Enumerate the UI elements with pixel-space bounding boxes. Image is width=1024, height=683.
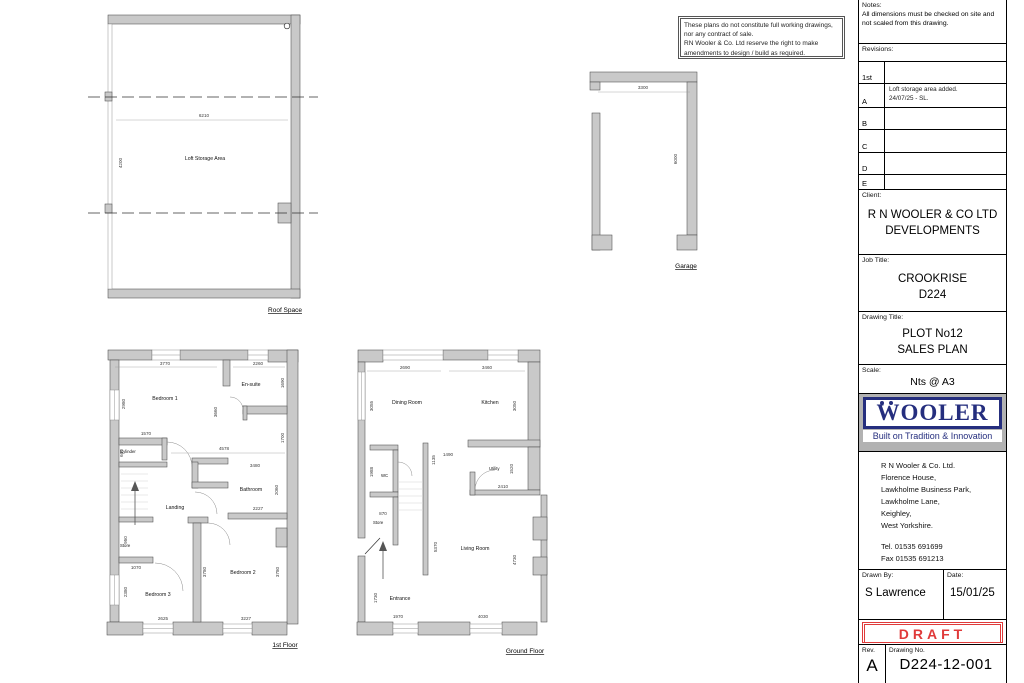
dim-1690: 1690 xyxy=(280,377,285,388)
dim-2410: 2410 xyxy=(498,484,509,489)
address-section: R N Wooler & Co. Ltd. Florence House, La… xyxy=(859,452,1006,570)
client-name-line2: DEVELOPMENTS xyxy=(859,224,1006,240)
drawnby-cell: Drawn By: S Lawrence xyxy=(859,570,944,619)
revision-id: A xyxy=(859,84,885,107)
job-title-line2: D224 xyxy=(859,288,1006,304)
room-living: Living Room xyxy=(461,546,490,552)
dim-4578: 4578 xyxy=(219,446,230,451)
dim-4730: 4730 xyxy=(512,554,517,565)
dim-1730: 1730 xyxy=(373,592,378,603)
dim-2625: 2625 xyxy=(158,616,169,621)
revision-row: C xyxy=(859,130,1006,153)
drawing-number-cell: Drawing No. D224-12-001 xyxy=(886,645,1006,683)
dim-6000: 6000 xyxy=(673,153,678,164)
room-wc: WC xyxy=(381,473,388,478)
plan-title-first: 1st Floor xyxy=(272,642,298,649)
roof-space-plan: 6210 4200 Loft Storage Area Roof Space xyxy=(88,8,318,318)
revision-desc xyxy=(885,108,1006,129)
dim-3460: 3460 xyxy=(482,365,493,370)
disclaimer-line: RN Wooler & Co. Ltd reserve the right to… xyxy=(684,39,839,48)
garage-plan: 3300 6000 Garage xyxy=(578,62,713,277)
dim-3660: 3660 xyxy=(213,406,218,417)
title-block: Notes: All dimensions must be checked on… xyxy=(858,0,1007,683)
drawing-title-line2: SALES PLAN xyxy=(859,343,1006,359)
dim-5370: 5370 xyxy=(433,541,438,552)
room-bedroom3: Bedroom 3 xyxy=(145,592,170,598)
revision-id: B xyxy=(859,108,885,129)
stairs-up-arrow-icon xyxy=(131,481,139,491)
room-ensuite: En-suite xyxy=(241,382,260,388)
dim-3055: 3055 xyxy=(369,400,374,411)
scale-value: Nts @ A3 xyxy=(859,375,1006,389)
revision-row: 1st xyxy=(859,62,1006,84)
room-landing: Landing xyxy=(166,505,185,511)
date-value: 15/01/25 xyxy=(944,579,1006,599)
dim-4030: 4030 xyxy=(478,614,489,619)
notes-text: All dimensions must be checked on site a… xyxy=(859,9,1006,28)
client-name-line1: R N WOOLER & CO LTD xyxy=(859,208,1006,224)
room-kitchen: Kitchen xyxy=(481,400,498,406)
revision-id: 1st xyxy=(859,62,885,83)
revision-desc xyxy=(885,153,1006,174)
dim-870: 870 xyxy=(379,511,387,516)
draft-text: DRAFT xyxy=(864,624,1001,643)
scale-label: Scale: xyxy=(859,365,1006,374)
stairs-up-arrow-icon xyxy=(379,541,387,551)
room-dining: Dining Room xyxy=(392,400,422,406)
wooler-logo-text: WOOLER xyxy=(866,400,999,426)
dim-1135: 1135 xyxy=(431,455,436,465)
address-line: Lawkholme Business Park, xyxy=(881,484,1006,496)
entrance-door-leaf xyxy=(365,538,380,554)
dim-3780-left: 3780 xyxy=(202,566,207,577)
dim-3480: 3480 xyxy=(250,463,261,468)
revision-desc xyxy=(885,62,1006,83)
dim-3227: 3227 xyxy=(241,616,252,621)
drawing-number-label: Drawing No. xyxy=(886,645,1006,654)
address-line: Florence House, xyxy=(881,472,1006,484)
rev-cell: Rev. A xyxy=(859,645,886,683)
dim-1970: 1970 xyxy=(393,614,404,619)
revision-desc xyxy=(885,130,1006,152)
dim-3770: 3770 xyxy=(160,361,171,366)
dim-2060: 2060 xyxy=(274,484,279,495)
dim-6210: 6210 xyxy=(199,113,210,118)
logo-section: WOOLER Built on Tradition & Innovation xyxy=(859,394,1006,452)
client-section: Client: R N WOOLER & CO LTD DEVELOPMENTS xyxy=(859,190,1006,255)
dim-3780-right: 3780 xyxy=(275,566,280,577)
dim-4200: 4200 xyxy=(118,157,123,168)
revision-id: D xyxy=(859,153,885,174)
rev-value: A xyxy=(859,656,885,676)
logo-pin-icon xyxy=(889,401,893,405)
dim-1570: 1570 xyxy=(141,431,152,436)
room-loft-storage: Loft Storage Area xyxy=(185,156,225,162)
plan-title-garage: Garage xyxy=(675,263,697,270)
revision-row: A Loft storage area added.24/07/25 - SL. xyxy=(859,84,1006,108)
drawing-sheet: 6210 4200 Loft Storage Area Roof Space 3… xyxy=(0,0,1024,683)
job-title-label: Job Title: xyxy=(859,255,1006,264)
room-bathroom: Bathroom xyxy=(240,487,263,493)
room-entrance: Entrance xyxy=(390,596,411,602)
draft-stamp: DRAFT xyxy=(862,622,1003,643)
disclaimer-line: These plans do not constitute full worki… xyxy=(684,21,839,30)
job-title-section: Job Title: CROOKRISE D224 xyxy=(859,255,1006,312)
revision-id: C xyxy=(859,130,885,152)
revision-row: E xyxy=(859,175,1006,190)
revision-row: D xyxy=(859,153,1006,175)
first-floor-plan: 3770 2260 2980 1690 3660 1570 600 4578 1… xyxy=(103,342,315,654)
revision-desc xyxy=(885,175,1006,189)
rev-number-section: Rev. A Drawing No. D224-12-001 xyxy=(859,645,1006,683)
job-title-line1: CROOKRISE xyxy=(859,272,1006,288)
drawnby-date-section: Drawn By: S Lawrence Date: 15/01/25 xyxy=(859,570,1006,620)
phone-line: Tel. 01535 691699 xyxy=(881,541,1006,553)
ground-floor-plan: 2690 3460 3055 3050 1988 1490 1135 1520 … xyxy=(353,342,553,662)
room-cylinder: Cylinder xyxy=(120,449,136,454)
wooler-logo: WOOLER xyxy=(863,397,1002,429)
dim-3050: 3050 xyxy=(512,400,517,411)
revision-id: E xyxy=(859,175,885,189)
roof-access-icon xyxy=(284,23,290,29)
address-line: Keighley, xyxy=(881,508,1006,520)
revisions-label: Revisions: xyxy=(859,44,1006,53)
disclaimer-line: amendments to design / build as required… xyxy=(684,49,839,58)
room-utility: Utility xyxy=(489,466,500,471)
revision-desc: Loft storage area added.24/07/25 - SL. xyxy=(885,84,1006,107)
dim-2980: 2980 xyxy=(121,398,126,409)
drawing-title-section: Drawing Title: PLOT No12 SALES PLAN xyxy=(859,312,1006,365)
dim-1070: 1070 xyxy=(131,565,142,570)
dim-2380: 2380 xyxy=(123,586,128,597)
dim-1988: 1988 xyxy=(369,466,374,477)
address-line: Lawkholme Lane, xyxy=(881,496,1006,508)
revisions-header: Revisions: xyxy=(859,44,1006,62)
dim-2690: 2690 xyxy=(400,365,411,370)
revisions-table: 1st A Loft storage area added.24/07/25 -… xyxy=(859,62,1006,190)
dim-1700: 1700 xyxy=(280,432,285,443)
drawing-title-label: Drawing Title: xyxy=(859,312,1006,321)
room-store-first: Store xyxy=(120,543,131,548)
rev-label: Rev. xyxy=(859,645,885,654)
date-cell: Date: 15/01/25 xyxy=(944,570,1006,619)
drawing-number-value: D224-12-001 xyxy=(886,656,1006,673)
dim-2260: 2260 xyxy=(253,361,264,366)
room-store-ground: Store xyxy=(373,520,384,525)
drawing-title-line1: PLOT No12 xyxy=(859,327,1006,343)
plan-title-roof: Roof Space xyxy=(268,307,302,314)
ground-floor-walls xyxy=(357,350,547,635)
client-label: Client: xyxy=(859,190,1006,199)
date-label: Date: xyxy=(944,570,1006,579)
address-line: West Yorkshire. xyxy=(881,520,1006,532)
logo-tagline: Built on Tradition & Innovation xyxy=(863,430,1002,442)
disclaimer-line: nor any contract of sale. xyxy=(684,30,839,39)
drawnby-label: Drawn By: xyxy=(859,570,943,579)
fax-line: Fax 01535 691213 xyxy=(881,553,1006,565)
room-bedroom1: Bedroom 1 xyxy=(152,396,177,402)
dim-1520: 1520 xyxy=(509,463,514,474)
drawnby-value: S Lawrence xyxy=(859,579,943,599)
scale-section: Scale: Nts @ A3 xyxy=(859,365,1006,394)
disclaimer-box: These plans do not constitute full worki… xyxy=(678,16,845,59)
revision-row: B xyxy=(859,108,1006,130)
dim-1490: 1490 xyxy=(443,452,454,457)
room-bedroom2: Bedroom 2 xyxy=(230,570,255,576)
dim-2227: 2227 xyxy=(253,506,264,511)
plan-title-ground: Ground Floor xyxy=(506,648,545,655)
first-floor-walls xyxy=(107,350,298,635)
notes-label: Notes: xyxy=(859,0,1006,9)
logo-pin-icon xyxy=(880,401,884,405)
address-line: R N Wooler & Co. Ltd. xyxy=(881,460,1006,472)
garage-walls xyxy=(590,72,697,250)
draft-section: DRAFT xyxy=(859,620,1006,645)
notes-section: Notes: All dimensions must be checked on… xyxy=(859,0,1006,44)
dim-3300: 3300 xyxy=(638,85,649,90)
